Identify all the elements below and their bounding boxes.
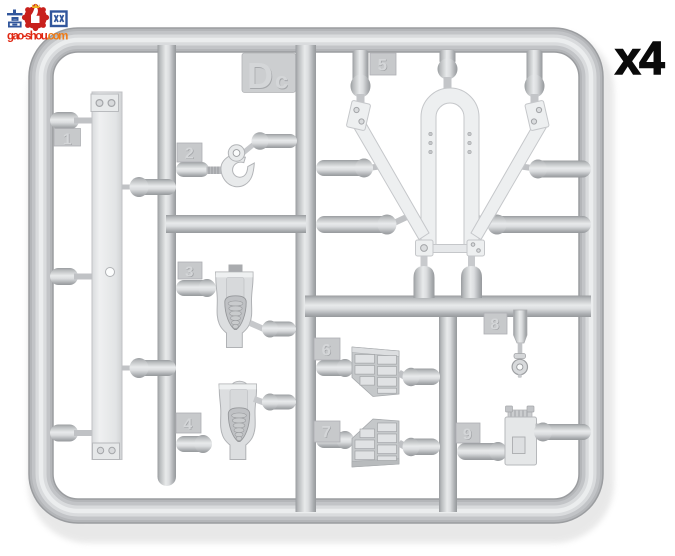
- svg-text:9: 9: [463, 426, 472, 443]
- svg-text:8: 8: [490, 316, 499, 333]
- svg-text:6: 6: [322, 340, 331, 359]
- svg-text:gao-shou.com: gao-shou.com: [7, 31, 68, 43]
- svg-text:7: 7: [322, 422, 331, 441]
- svg-text:1: 1: [63, 131, 72, 148]
- svg-text:D: D: [247, 55, 273, 96]
- svg-text:x4: x4: [615, 32, 665, 84]
- svg-text:c: c: [275, 68, 288, 94]
- svg-text:3: 3: [185, 263, 193, 280]
- svg-text:2: 2: [185, 145, 194, 162]
- svg-text:4: 4: [183, 416, 192, 433]
- svg-text:5: 5: [378, 55, 387, 74]
